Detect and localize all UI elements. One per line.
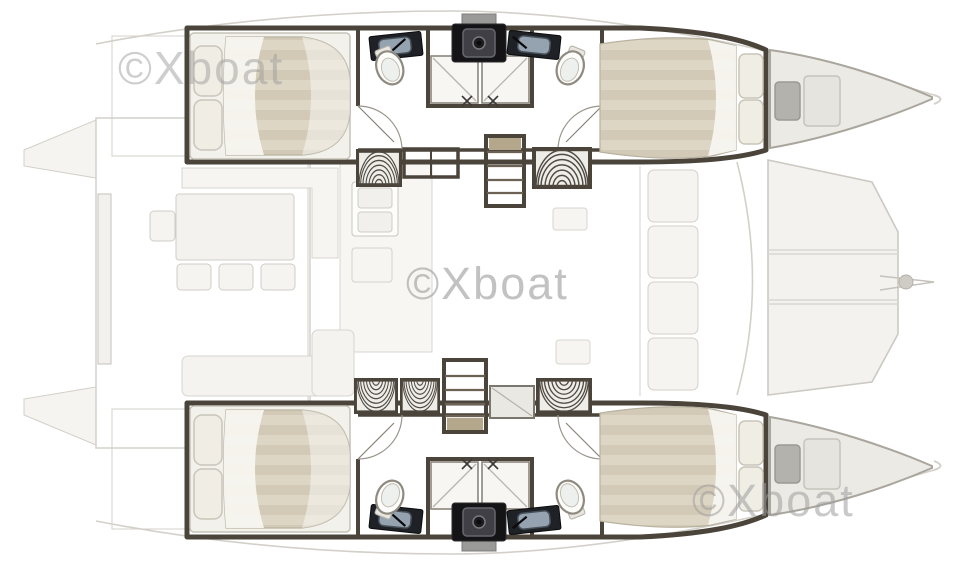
forward-cabin [600, 38, 763, 159]
salon-sofa-corner [312, 330, 354, 396]
bow-tip-bottom [934, 461, 941, 470]
cockpit-cushion [648, 226, 698, 278]
stairs-to-starboard-hull [444, 360, 486, 432]
cockpit-cushion [648, 282, 698, 334]
stern-step-top [24, 120, 96, 178]
equipment-dial-center [477, 41, 482, 46]
bow-fitting [899, 275, 913, 289]
hanging-locker-icon [538, 380, 590, 412]
pillow [739, 54, 763, 98]
galley-appliance [352, 248, 392, 282]
port-hull-interior [187, 14, 932, 162]
pillow [739, 100, 763, 144]
hanging-locker-icon [355, 380, 396, 412]
bow-berth-cushion-gray [775, 82, 800, 120]
foredeck-panels [768, 160, 898, 395]
pillow [194, 100, 222, 150]
hanging-locker-icon [358, 151, 401, 185]
watermark-center: ©Xboat [406, 258, 569, 309]
bow-tip-top [934, 95, 941, 104]
sink-right [507, 30, 561, 59]
floor-plan-drawing: ©Xboat ©Xboat ©Xboat [0, 0, 960, 565]
bow-berth [770, 50, 932, 148]
cockpit-cushion [648, 338, 698, 390]
bathroom [358, 14, 602, 150]
dining-chair [150, 211, 175, 241]
stairs-landing [447, 418, 483, 430]
side-deck-bottom [112, 409, 186, 529]
dining-chair [261, 264, 295, 290]
stairs-landing [489, 138, 521, 150]
forward-cockpit-seating [640, 162, 753, 396]
watermark-top-left: ©Xboat [118, 42, 284, 94]
central-equipment-box [452, 14, 506, 62]
stairs-to-port-hull [486, 136, 524, 206]
dining-chair [177, 264, 211, 290]
cockpit-back-curve [737, 162, 753, 395]
galley-sink-basin [358, 212, 392, 232]
galley-sink-basin [358, 188, 392, 208]
foredeck [768, 160, 934, 395]
stern-step-bottom [24, 387, 96, 445]
companionway-bottom [355, 360, 590, 432]
watermark-bottom-right: ©Xboat [692, 475, 855, 526]
cockpit-cushion [648, 170, 698, 222]
salon-side-table [553, 208, 587, 230]
door-leaf [358, 106, 394, 142]
transom-bench [98, 194, 111, 364]
salon-nav-seat [556, 340, 590, 364]
hanging-locker-icon [534, 149, 590, 187]
dining-chair [219, 264, 253, 290]
door-leaf [566, 106, 602, 142]
hanging-locker-icon [401, 380, 438, 412]
catamaran-floor-plan-page: ©Xboat ©Xboat ©Xboat [0, 0, 960, 565]
dining-table [176, 194, 294, 260]
stair-treads [487, 152, 523, 193]
stair-treads [445, 376, 485, 416]
bow-berth-cushion-light [804, 76, 840, 126]
hanging-lockers-mirrored [355, 380, 590, 412]
